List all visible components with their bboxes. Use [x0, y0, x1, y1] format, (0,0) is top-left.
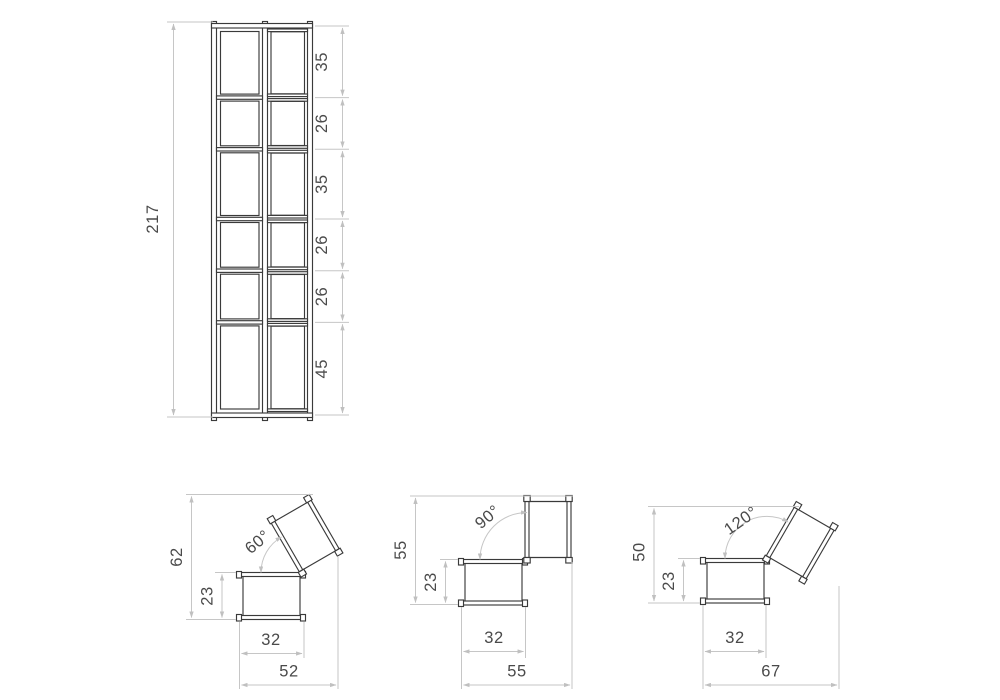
tower-height-dimension: 217 — [144, 22, 213, 417]
total-width-label: 67 — [761, 663, 781, 681]
seat-width-label: 32 — [725, 629, 745, 647]
seat-box — [701, 558, 770, 605]
seat-height-label: 23 — [199, 586, 217, 606]
seat-diagram-90: 90° 55 23 32 55 — [392, 496, 573, 690]
angle-label: 90° — [472, 502, 504, 533]
backrest-panel — [267, 494, 343, 577]
seat-width-label: 32 — [484, 629, 504, 647]
seat-box — [237, 572, 306, 622]
tower-segment-dimensions: 35 26 35 26 26 45 — [313, 26, 349, 415]
technical-drawing-sheet: 217 35 26 35 26 26 45 — [0, 0, 1000, 700]
tower-bottom-rail — [212, 413, 313, 418]
total-height-label: 62 — [168, 547, 186, 567]
seat-diagram-120: 120° 50 23 32 67 — [631, 501, 840, 689]
tower-front-view — [212, 22, 313, 421]
tower-post-middle — [263, 22, 268, 421]
backrest-panel — [762, 501, 838, 584]
angle-label: 120° — [721, 503, 761, 539]
backrest-panel — [524, 496, 572, 564]
seat-width-label: 32 — [261, 631, 281, 649]
total-width-label: 52 — [279, 663, 299, 681]
tower-total-height-label: 217 — [144, 204, 162, 233]
seat-diagram-60: 60° 62 23 32 52 — [168, 494, 343, 689]
total-width-label: 55 — [507, 663, 527, 681]
seat-height-label: 23 — [660, 571, 678, 591]
tower-segment-label-5: 26 — [313, 287, 331, 307]
technical-drawing-canvas: 217 35 26 35 26 26 45 — [0, 0, 1000, 700]
angle-label: 60° — [242, 527, 274, 558]
seat-height-label: 23 — [422, 572, 440, 592]
total-height-label: 50 — [631, 542, 649, 562]
tower-post-right — [308, 22, 313, 421]
dimensions-60: 62 23 32 52 — [168, 495, 338, 690]
tower-segment-label-4: 26 — [313, 235, 331, 255]
tower-segment-label-1: 35 — [313, 52, 331, 72]
tower-top-rail — [212, 24, 313, 29]
total-height-label: 55 — [392, 540, 410, 560]
seat-box — [459, 559, 528, 607]
tower-segment-label-2: 26 — [313, 114, 331, 134]
tower-segment-label-6: 45 — [313, 359, 331, 379]
tower-segment-label-3: 35 — [313, 174, 331, 194]
tower-post-left — [212, 22, 217, 421]
